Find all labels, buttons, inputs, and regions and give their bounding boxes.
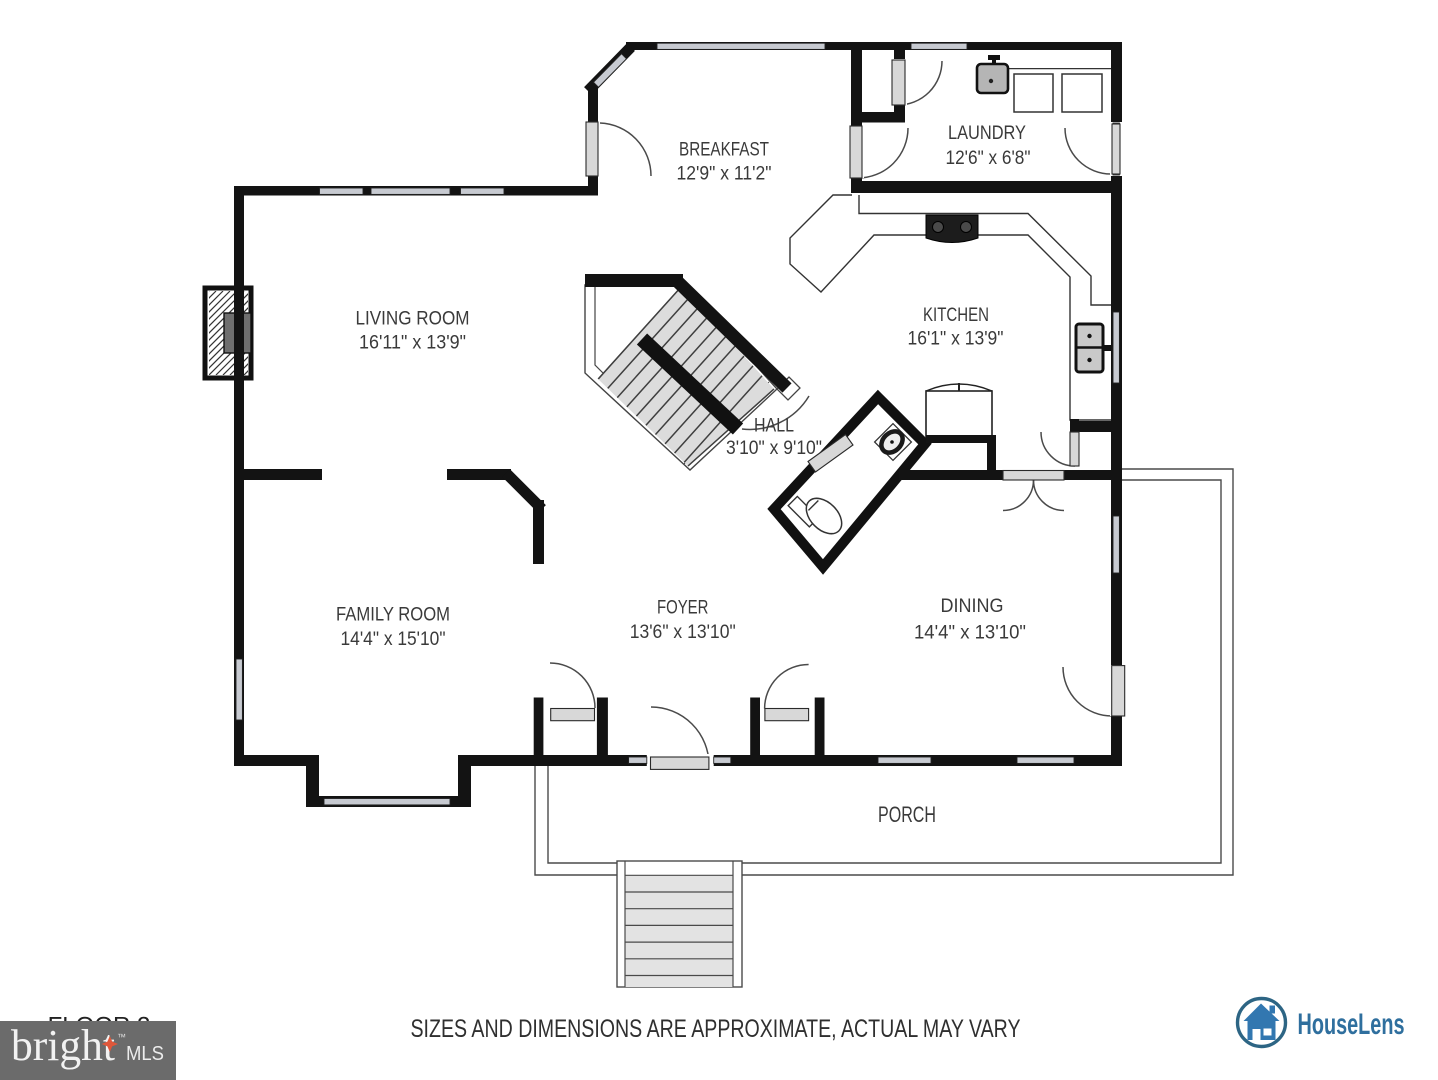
svg-text:13'6" x 13'10": 13'6" x 13'10"	[630, 622, 736, 643]
svg-text:DINING: DINING	[941, 596, 1004, 617]
svg-text:HouseLens: HouseLens	[1298, 1008, 1405, 1041]
svg-text:14'4" x 13'10": 14'4" x 13'10"	[914, 623, 1026, 644]
svg-text:KITCHEN: KITCHEN	[923, 305, 989, 326]
svg-text:LIVING ROOM: LIVING ROOM	[356, 309, 470, 330]
svg-text:LAUNDRY: LAUNDRY	[948, 123, 1026, 144]
svg-text:14'4" x 15'10": 14'4" x 15'10"	[341, 629, 446, 650]
svg-text:16'1" x 13'9": 16'1" x 13'9"	[908, 329, 1004, 350]
svg-text:12'9" x 11'2": 12'9" x 11'2"	[677, 164, 772, 185]
svg-text:HALL: HALL	[754, 416, 794, 437]
svg-text:3'10" x 9'10": 3'10" x 9'10"	[726, 438, 822, 459]
svg-text:BREAKFAST: BREAKFAST	[679, 140, 769, 161]
svg-text:bright: bright	[11, 1021, 115, 1070]
svg-text:SIZES AND DIMENSIONS ARE APPRO: SIZES AND DIMENSIONS ARE APPROXIMATE, AC…	[411, 1015, 1021, 1043]
svg-text:FAMILY ROOM: FAMILY ROOM	[336, 605, 450, 626]
svg-text:FOYER: FOYER	[657, 598, 709, 619]
svg-text:12'6" x 6'8": 12'6" x 6'8"	[946, 148, 1031, 169]
svg-text:™: ™	[117, 1032, 126, 1042]
svg-text:PORCH: PORCH	[878, 802, 936, 827]
svg-text:16'11" x 13'9": 16'11" x 13'9"	[359, 333, 466, 354]
svg-text:MLS: MLS	[126, 1043, 164, 1065]
